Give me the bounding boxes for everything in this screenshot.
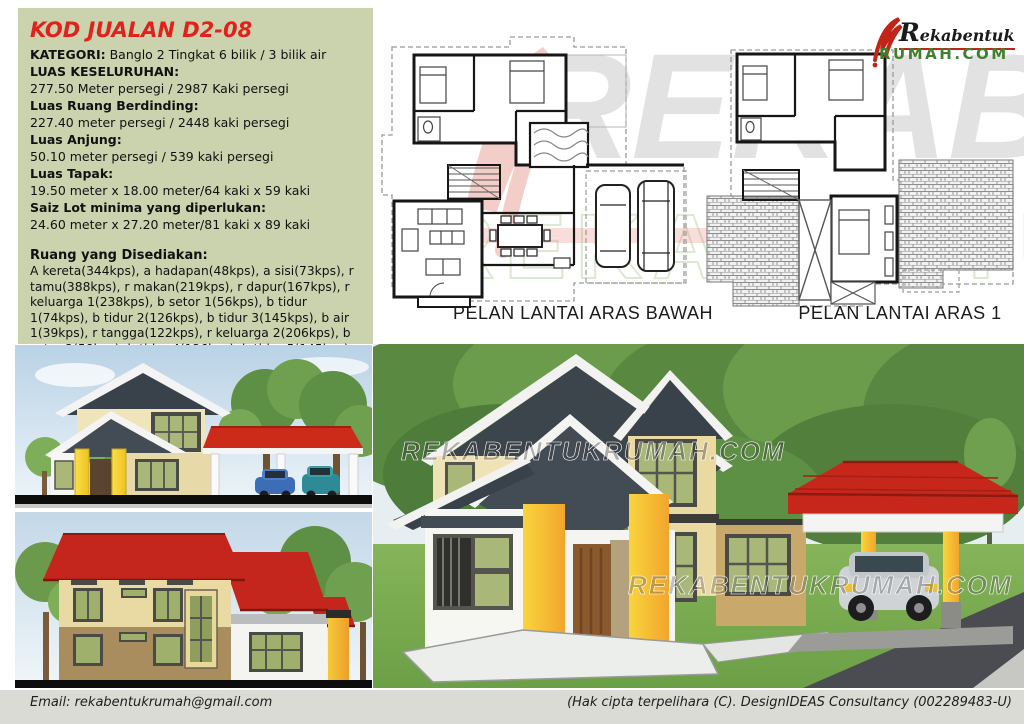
roof-hatch-left	[707, 196, 799, 306]
front-door	[90, 459, 111, 497]
stair-window-column	[185, 590, 217, 668]
footer-bar: Email: rekabentukrumah@gmail.com (Hak ci…	[0, 690, 1024, 724]
spec-line: Luas Ruang Berdinding:	[30, 97, 361, 114]
spec-line: 50.10 meter persegi / 539 kaki persegi	[30, 148, 361, 165]
spec-line: Luas Anjung:	[30, 131, 361, 148]
logo-text-bottom: RUMAH.COM	[879, 45, 1009, 63]
dining-set	[490, 216, 550, 256]
spec-line: KATEGORI: Banglo 2 Tingkat 6 bilik / 3 b…	[30, 46, 361, 63]
render-watermark: REKABENTUKRUMAH.COM	[401, 436, 786, 466]
spec-line: 227.40 meter persegi / 2448 kaki persegi	[30, 114, 361, 131]
rooms-heading: Ruang yang Disediakan:	[30, 247, 361, 264]
entrance-pillar	[629, 494, 669, 644]
side-elevation-render	[15, 512, 372, 688]
spec-line: 24.60 meter x 27.20 meter/81 kaki x 89 k…	[30, 216, 361, 233]
footer-copyright: (Hak cipta terpelihara (C). DesignIDEAS …	[567, 695, 1012, 710]
entrance-pillar	[112, 449, 126, 497]
first-plan-label: PELAN LANTAI ARAS 1	[760, 303, 1024, 324]
spec-line: 19.50 meter x 18.00 meter/64 kaki x 59 k…	[30, 182, 361, 199]
perspective-render: REKABENTUKRUMAH.COM REKABENTUKRUMAH.COM	[373, 344, 1024, 688]
ground-floor-plan	[378, 15, 698, 310]
perspective-svg: REKABENTUKRUMAH.COM REKABENTUKRUMAH.COM	[373, 344, 1024, 688]
roof-slope-marker	[799, 200, 831, 300]
page-title: KOD JUALAN D2-08	[30, 18, 361, 42]
car-top-view	[596, 185, 630, 267]
side-elevation-svg	[15, 512, 372, 688]
spec-line: Luas Tapak:	[30, 165, 361, 182]
garage	[586, 165, 686, 283]
car-top-view	[638, 181, 674, 271]
spec-line: 277.50 Meter persegi / 2987 Kaki persegi	[30, 80, 361, 97]
brochure-page: KOD JUALAN D2-08 KATEGORI: Banglo 2 Ting…	[0, 0, 1024, 724]
spec-panel: KOD JUALAN D2-08 KATEGORI: Banglo 2 Ting…	[18, 8, 373, 344]
eave-brackets	[71, 580, 193, 585]
ground-line	[15, 680, 372, 688]
kitchen-area	[530, 123, 588, 167]
roof-slope-marker-small	[831, 282, 875, 304]
side-window	[55, 461, 73, 489]
spec-line: LUAS KESELURUHAN:	[30, 63, 361, 80]
roof-hatch-right	[899, 160, 1013, 288]
front-elevation-render	[15, 345, 372, 508]
rekabentukrumah-logo: Rekabentuk RUMAH.COM	[861, 16, 1019, 76]
entrance-pillar	[75, 449, 89, 497]
floor-plans-area: REKABENTUKRUMAH.COM REKABENTUKRUMAH.COM	[373, 0, 1024, 344]
lower-window	[135, 459, 179, 491]
front-elevation-svg	[15, 345, 372, 508]
ground-plan-label: PELAN LANTAI ARAS BAWAH	[443, 303, 723, 324]
footer-email: Email: rekabentukrumah@gmail.com	[30, 695, 272, 710]
white-section-window	[249, 632, 303, 672]
spec-line: Saiz Lot minima yang diperlukan:	[30, 199, 361, 216]
render-watermark: REKABENTUKRUMAH.COM	[628, 570, 1013, 600]
corner-column	[328, 616, 349, 680]
ground-line	[15, 495, 372, 504]
